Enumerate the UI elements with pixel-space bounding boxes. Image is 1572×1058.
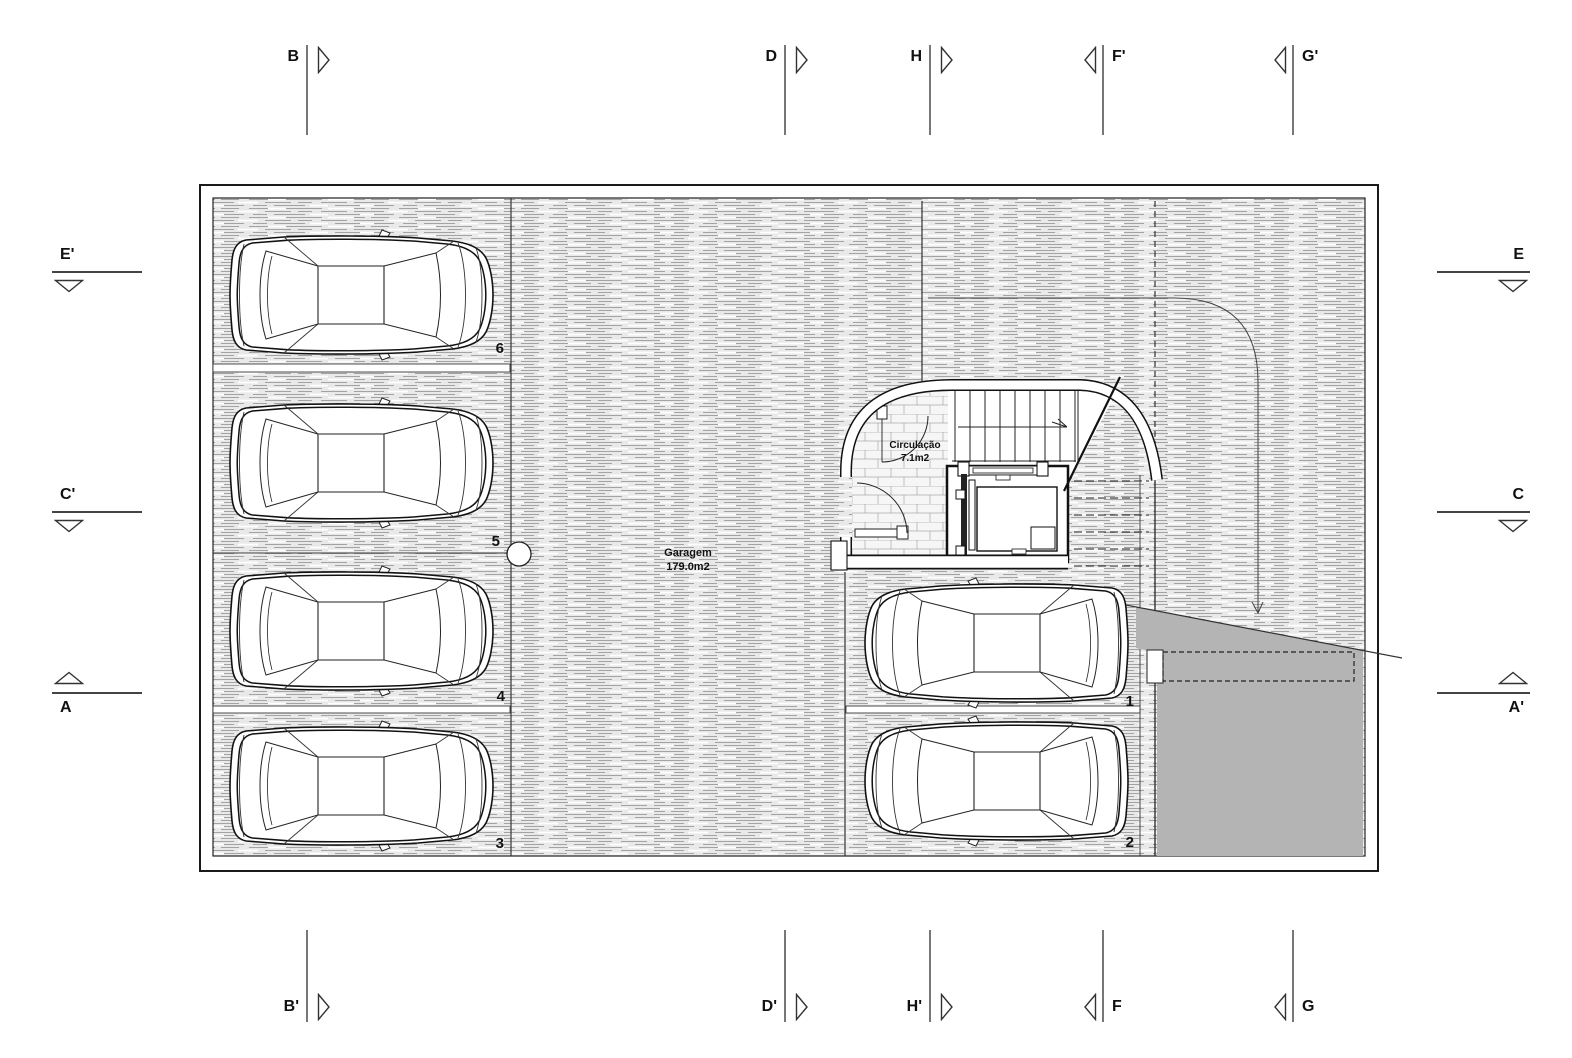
section-arrow-down-icon (54, 519, 84, 533)
section-label: G' (1302, 48, 1318, 66)
section-label: E' (60, 246, 74, 264)
section-label: F (1112, 998, 1122, 1016)
section-arrow-right-icon (795, 993, 809, 1021)
section-line (1437, 511, 1530, 513)
car-6 (230, 230, 493, 360)
section-line (784, 930, 786, 1022)
section-line (1102, 45, 1104, 135)
section-arrow-left-icon (1273, 46, 1287, 74)
section-line (929, 45, 931, 135)
car-4 (230, 566, 493, 696)
section-label: A (60, 699, 72, 717)
elevator-guide-rail (961, 474, 967, 556)
section-label: C' (60, 486, 75, 504)
section-line (1437, 692, 1530, 694)
floor-plan-drawing: Garagem 179.0m2 Circulação 7.1m2 6 5 4 3… (0, 0, 1572, 1058)
car-3 (230, 721, 493, 851)
section-line (306, 930, 308, 1022)
section-label: H' (907, 998, 922, 1016)
section-arrow-right-icon (940, 46, 954, 74)
circulation-room-name: Circulação (889, 440, 940, 451)
section-arrow-down-icon (1498, 519, 1528, 533)
section-line (52, 511, 142, 513)
circulation-room-area: 7.1m2 (901, 453, 930, 464)
section-arrow-right-icon (317, 46, 331, 74)
section-line (1292, 930, 1294, 1022)
section-line (1437, 271, 1530, 273)
section-line (1102, 930, 1104, 1022)
section-label: H (910, 48, 922, 66)
section-line (52, 271, 142, 273)
section-arrow-up-icon (1498, 671, 1528, 685)
section-label: G (1302, 998, 1314, 1016)
section-label: E (1513, 246, 1524, 264)
section-arrow-left-icon (1273, 993, 1287, 1021)
section-arrow-right-icon (795, 46, 809, 74)
section-label: B (287, 48, 299, 66)
section-line (929, 930, 931, 1022)
stall-number-6: 6 (496, 340, 504, 357)
section-label: A' (1509, 699, 1524, 717)
section-arrow-left-icon (1083, 993, 1097, 1021)
car-5 (230, 398, 493, 528)
architectural-drawing-sheet: Garagem 179.0m2 Circulação 7.1m2 6 5 4 3… (0, 0, 1572, 1058)
section-line (784, 45, 786, 135)
wall-pilaster (1147, 650, 1163, 683)
section-label: C (1512, 486, 1524, 504)
section-label: B' (284, 998, 299, 1016)
section-arrow-down-icon (1498, 279, 1528, 293)
car-2 (865, 716, 1128, 846)
section-arrow-right-icon (317, 993, 331, 1021)
stall-number-1: 1 (1126, 693, 1134, 710)
garage-room-area: 179.0m2 (666, 561, 709, 573)
section-arrow-left-icon (1083, 46, 1097, 74)
section-label: D' (762, 998, 777, 1016)
stall-number-3: 3 (496, 835, 504, 852)
stall-number-2: 2 (1126, 834, 1134, 851)
garage-room-name: Garagem (664, 547, 712, 559)
structural-column (507, 542, 531, 566)
section-label: F' (1112, 48, 1126, 66)
section-arrow-down-icon (54, 279, 84, 293)
car-1 (865, 578, 1128, 708)
stall-number-5: 5 (492, 533, 500, 550)
section-line (1292, 45, 1294, 135)
section-arrow-up-icon (54, 671, 84, 685)
section-line (306, 45, 308, 135)
section-arrow-right-icon (940, 993, 954, 1021)
elevator-shaft (947, 462, 1068, 564)
stall-number-4: 4 (497, 688, 506, 705)
section-label: D (765, 48, 777, 66)
section-line (52, 692, 142, 694)
